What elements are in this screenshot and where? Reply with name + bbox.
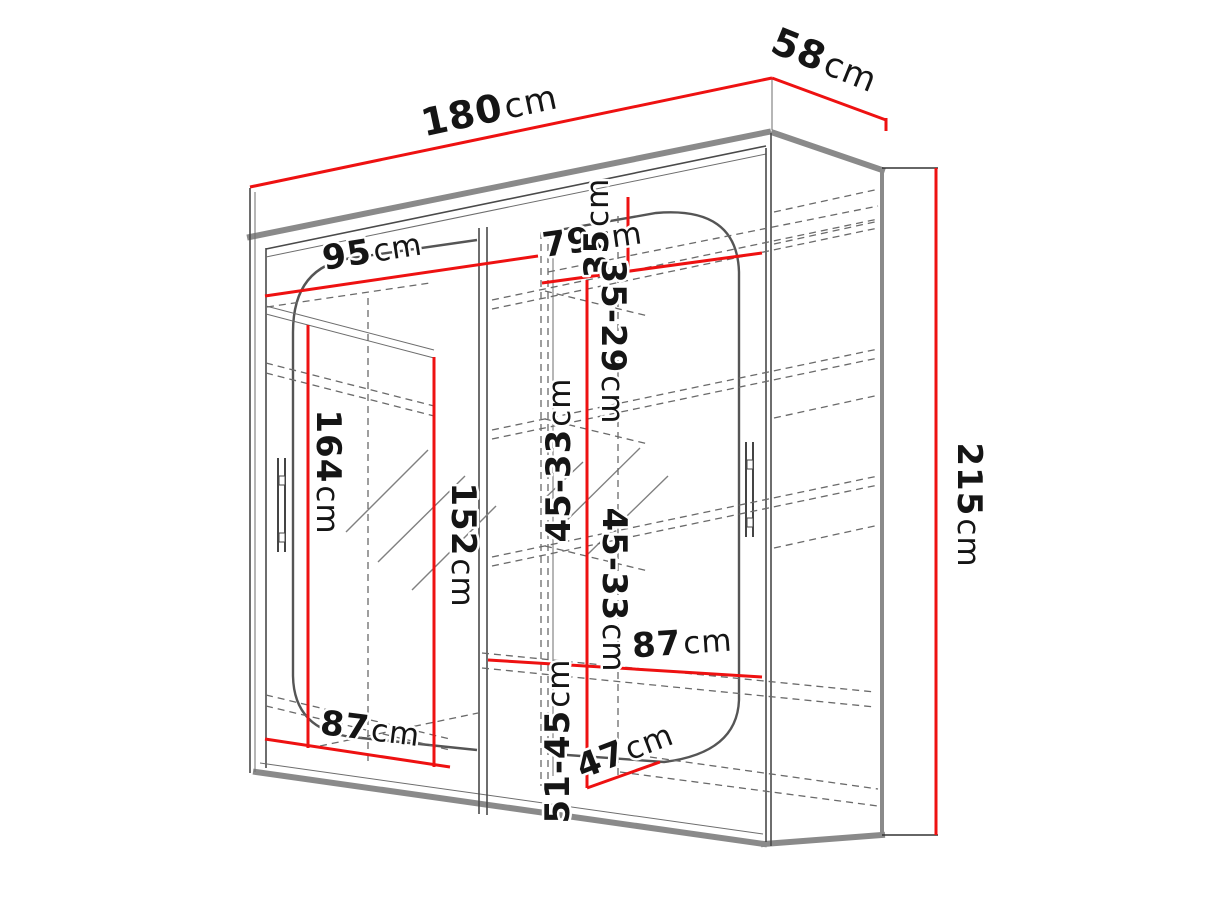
- label-45-33-left: 45-33cm: [539, 378, 579, 543]
- label-51-45: 51-45cm: [538, 659, 578, 824]
- label-height-215: 215cm: [949, 442, 989, 567]
- label-87-bottom: 87cm: [318, 703, 423, 755]
- right-door-handle: [746, 442, 753, 537]
- label-depth-58: 58cm: [765, 19, 884, 101]
- right-door-outline: [553, 212, 739, 762]
- left-door-handle: [278, 458, 285, 552]
- label-45-33-right: 45-33cm: [594, 508, 634, 673]
- label-35-29: 35-29cm: [593, 260, 633, 425]
- label-87-middle: 87cm: [631, 620, 734, 667]
- label-95: 95cm: [319, 224, 425, 279]
- diagram-canvas: 180cm 58cm 215cm 95cm 79cm 35cm 35-29cm …: [0, 0, 1221, 916]
- label-152: 152cm: [443, 482, 483, 607]
- dimension-labels: 180cm 58cm 215cm 95cm 79cm 35cm 35-29cm …: [308, 19, 989, 824]
- label-164: 164cm: [308, 409, 348, 534]
- label-width-180: 180cm: [417, 73, 561, 145]
- wardrobe-dimension-diagram: 180cm 58cm 215cm 95cm 79cm 35cm 35-29cm …: [0, 0, 1221, 916]
